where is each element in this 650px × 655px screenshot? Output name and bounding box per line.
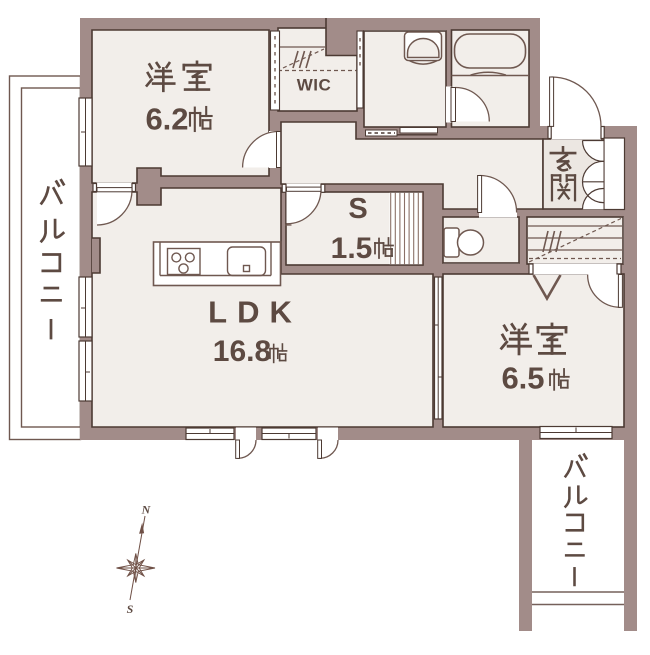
svg-text:S: S	[127, 602, 134, 616]
svg-text:1.5: 1.5	[331, 232, 373, 265]
svg-text:6.2: 6.2	[145, 102, 188, 137]
svg-text:WIC: WIC	[297, 76, 332, 95]
svg-text:N: N	[141, 503, 152, 517]
svg-text:16.8: 16.8	[213, 335, 271, 368]
svg-text:6.5: 6.5	[501, 361, 544, 396]
svg-text:LDK: LDK	[208, 295, 302, 330]
svg-text:S: S	[348, 193, 367, 225]
